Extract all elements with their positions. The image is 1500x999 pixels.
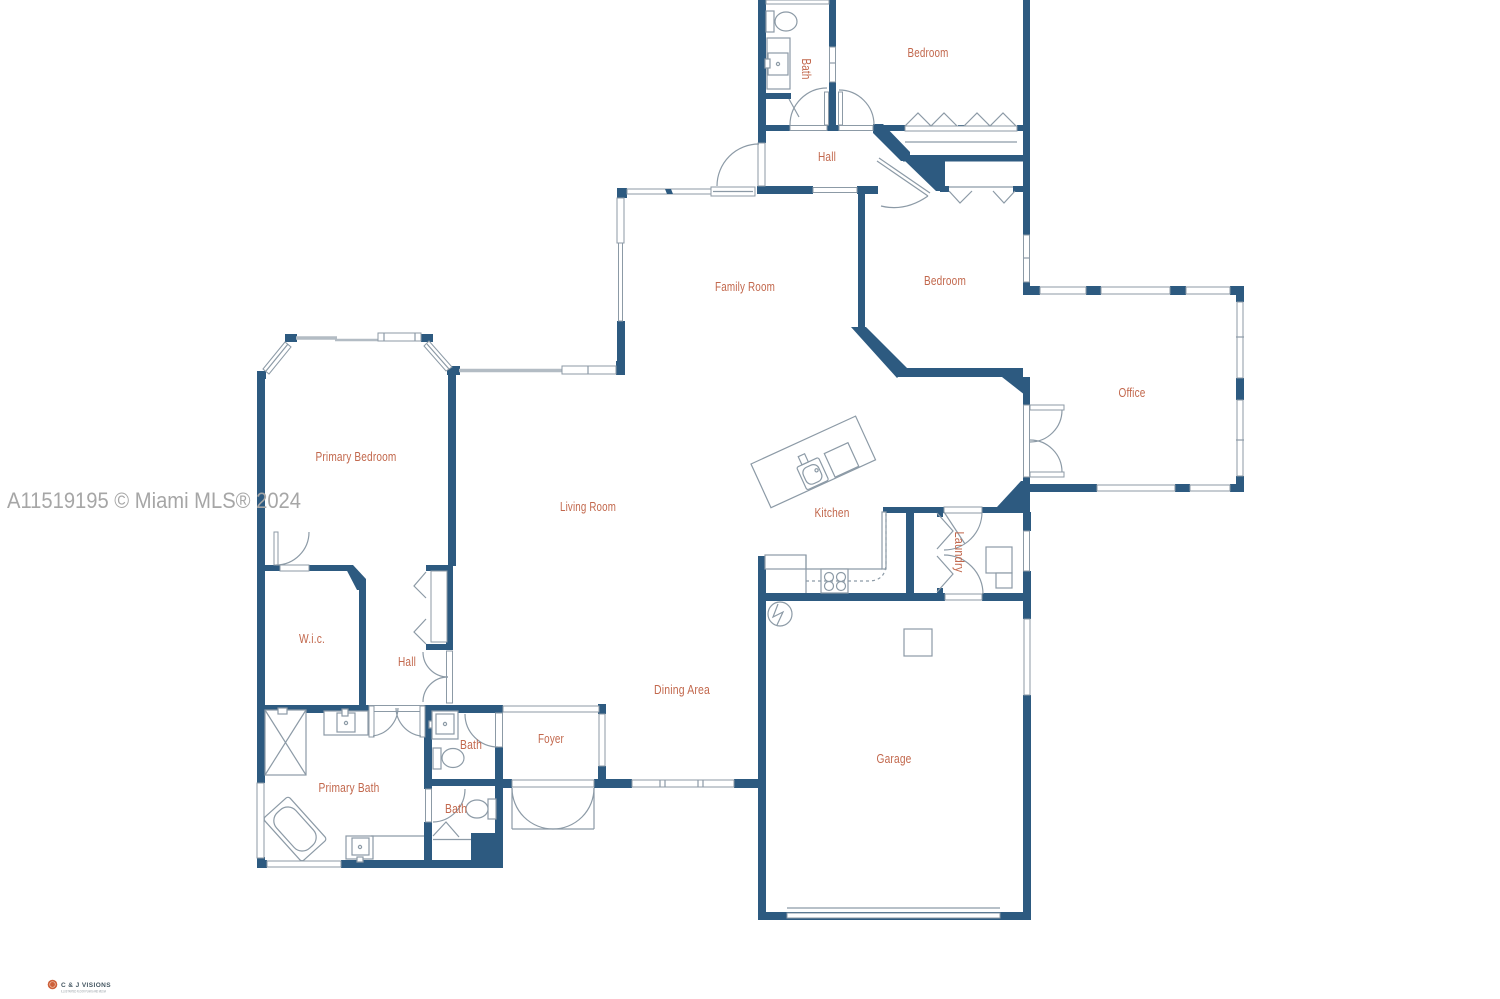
svg-text:Foyer: Foyer xyxy=(538,732,564,746)
svg-text:Office: Office xyxy=(1119,386,1146,400)
svg-text:Family Room: Family Room xyxy=(715,280,775,294)
svg-text:Dining Area: Dining Area xyxy=(654,683,710,697)
svg-text:Living Room: Living Room xyxy=(560,500,616,514)
svg-text:Kitchen: Kitchen xyxy=(815,506,850,520)
svg-text:W.i.c.: W.i.c. xyxy=(299,632,325,646)
svg-text:Primary Bedroom: Primary Bedroom xyxy=(316,450,397,464)
svg-text:Bedroom: Bedroom xyxy=(908,46,949,60)
svg-text:Garage: Garage xyxy=(877,752,912,766)
svg-text:Hall: Hall xyxy=(398,655,416,669)
svg-text:Bath: Bath xyxy=(460,738,482,752)
svg-text:Hall: Hall xyxy=(818,150,836,164)
svg-text:A11519195 © Miami MLS® 2024: A11519195 © Miami MLS® 2024 xyxy=(7,488,301,513)
svg-text:Primary Bath: Primary Bath xyxy=(319,781,380,795)
svg-text:Bedroom: Bedroom xyxy=(924,274,966,288)
svg-text:C & J VISIONS: C & J VISIONS xyxy=(61,982,111,989)
svg-text:Bath: Bath xyxy=(445,802,467,816)
svg-text:Laundry: Laundry xyxy=(952,532,966,573)
svg-text:ILLUSTRATED FLOOR PLANS AND ME: ILLUSTRATED FLOOR PLANS AND MEDIA xyxy=(61,990,106,994)
svg-text:Bath: Bath xyxy=(799,59,813,80)
